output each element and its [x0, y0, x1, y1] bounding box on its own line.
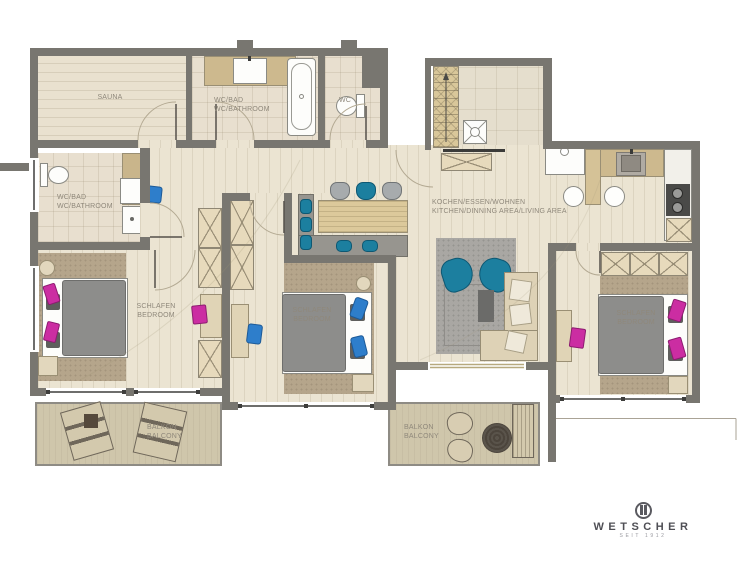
washer-knob-icon: [130, 217, 134, 221]
wall-segment: [30, 242, 150, 250]
wall-segment: [425, 58, 431, 150]
wardrobe: [659, 252, 688, 276]
burner-icon: [672, 188, 683, 199]
dining-table: [318, 200, 408, 233]
door-gap: [330, 140, 366, 148]
wardrobe: [601, 252, 630, 276]
toilet-tank: [40, 163, 48, 187]
room-label-bathroom-top: WC/BADWC/BATHROOM: [214, 97, 270, 114]
staircase: [433, 66, 459, 148]
room-label-bathroom-left: WC/BADWC/BATHROOM: [57, 194, 113, 211]
wetscher-brand-text: WETSCHER: [584, 521, 702, 533]
wardrobe: [630, 252, 659, 276]
entry-bench: [443, 149, 505, 152]
desk-chair: [246, 323, 263, 345]
balcony-round-table: [482, 423, 512, 453]
room-label-balcony-right: BALKONBALCONY: [404, 424, 439, 441]
wall-segment: [237, 40, 253, 48]
bench-cushion: [300, 199, 312, 214]
sofa-pillow: [509, 279, 533, 303]
door-gap: [140, 203, 150, 237]
bench-cushion: [300, 217, 312, 232]
bed-duvet: [282, 294, 346, 372]
desk-chair: [191, 304, 208, 324]
wall-segment: [186, 56, 192, 148]
bathroom-sink: [233, 58, 267, 84]
window: [560, 395, 686, 403]
window: [29, 266, 39, 352]
room-label-bedroom-left: SCHLAFENBEDROOM: [126, 303, 186, 320]
wardrobe: [198, 340, 222, 378]
wall-segment: [284, 255, 396, 263]
balcony-side-table: [84, 414, 98, 428]
bench-cushion: [300, 235, 312, 250]
wall-segment: [543, 58, 552, 148]
bedroom-stool: [356, 276, 371, 291]
burner-icon: [672, 202, 683, 213]
duct-block: [362, 56, 380, 88]
wetscher-logo-icon: [635, 502, 652, 519]
wall-segment: [543, 141, 700, 149]
bar-stool: [604, 186, 625, 207]
balcony-lounger: [512, 404, 534, 458]
kitchen-base-cabinet: [666, 218, 692, 242]
sofa-pillow: [509, 303, 532, 326]
door-gap: [138, 140, 176, 148]
wall-segment: [548, 243, 556, 462]
sofa-pillow: [504, 330, 528, 354]
wardrobe: [198, 248, 222, 288]
room-label-bedroom-right: SCHLAFENBEDROOM: [606, 310, 666, 327]
wardrobe: [230, 200, 254, 245]
room-label-balcony-left: BALKONBALCONY: [147, 424, 182, 441]
kitchen-sink-basin: [621, 155, 641, 172]
wall-segment: [0, 163, 30, 171]
toilet-bowl: [48, 166, 69, 184]
room-label-kitchen-living: KOCHEN/ESSEN/WOHNENKITCHEN/DINNING AREA/…: [432, 199, 567, 216]
dining-chair: [382, 182, 402, 200]
entry-sideboard: [441, 153, 492, 171]
room-label-sauna: SAUNA: [80, 94, 140, 103]
bed-duvet: [62, 280, 126, 356]
door-gap: [216, 140, 254, 148]
nightstand: [668, 376, 688, 394]
kitchen-peninsula: [585, 149, 601, 205]
desk-chair: [569, 327, 587, 349]
room-label-bedroom-middle: SCHLAFENBEDROOM: [282, 307, 342, 324]
dining-chair: [330, 182, 350, 200]
door-gap: [576, 243, 600, 251]
wardrobe: [198, 208, 222, 248]
dining-chair: [356, 182, 376, 200]
wetscher-tagline-text: SEIT 1912: [584, 533, 702, 539]
wall-segment: [318, 56, 325, 148]
dining-bench: [298, 235, 408, 257]
bench-cushion: [336, 240, 352, 252]
sliding-door: [428, 362, 526, 370]
nightstand: [352, 374, 374, 392]
wetscher-logo: WETSCHER SEIT 1912: [584, 502, 702, 544]
bed-duvet: [598, 296, 664, 374]
wall-segment: [284, 193, 292, 263]
wall-segment: [380, 48, 388, 148]
wardrobe: [230, 245, 254, 290]
window: [134, 388, 200, 396]
window: [29, 158, 39, 212]
floor-plan: SAUNA WC/BADWC/BATHROOM WC WC/BADWC/BATH…: [0, 0, 754, 565]
window: [238, 402, 374, 410]
coffee-table: [478, 290, 494, 322]
bedroom-stool: [39, 260, 55, 276]
room-label-wc: WC: [330, 97, 360, 106]
wall-segment: [222, 193, 230, 410]
wall-segment: [388, 255, 396, 410]
bathroom-left-sink: [120, 178, 142, 204]
wall-segment: [30, 48, 388, 56]
wall-segment: [425, 58, 552, 66]
wall-segment: [341, 40, 357, 48]
bench-cushion: [362, 240, 378, 252]
entry-shower-drain-icon: [470, 127, 480, 137]
wall-segment: [692, 141, 700, 403]
bathtub-drain-icon: [299, 94, 304, 99]
window: [46, 388, 126, 396]
nightstand: [38, 356, 58, 376]
